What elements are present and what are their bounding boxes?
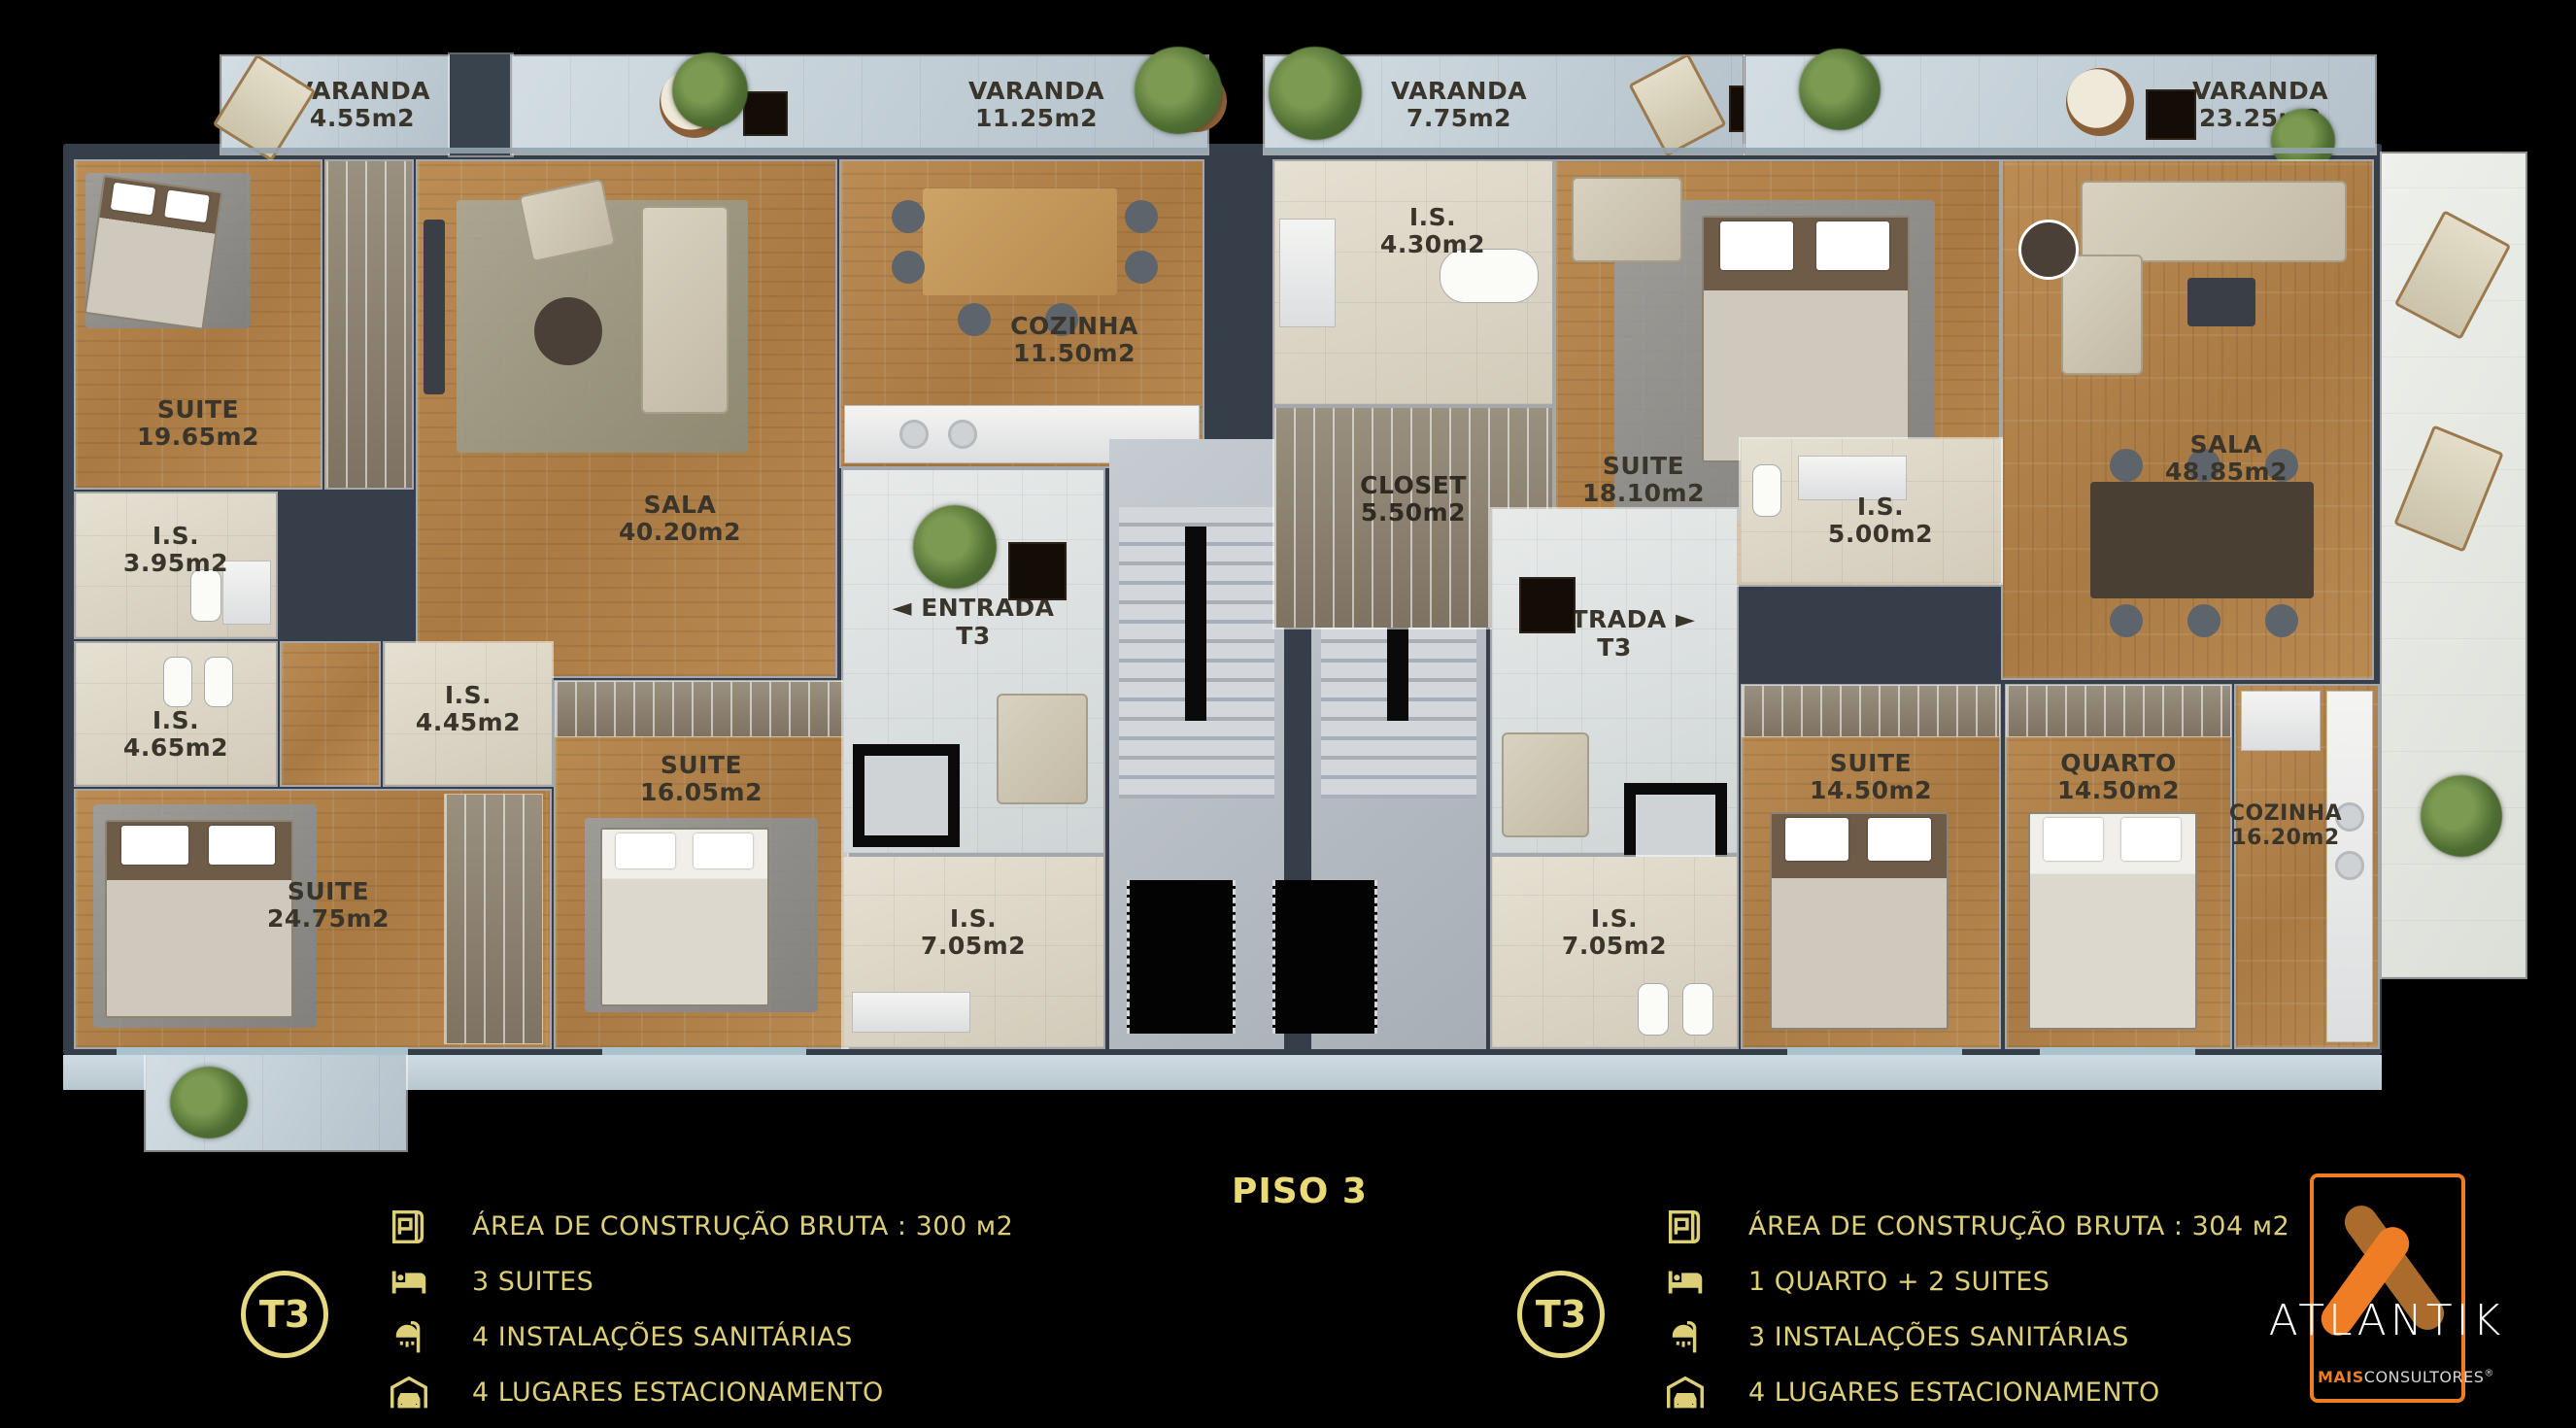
floor-title: PISO 3 [1232,1172,1368,1211]
room-area: 7.05m2 [843,933,1103,960]
console [1519,577,1576,633]
side-table [2146,89,2196,140]
plant [1135,47,1222,134]
legend-right: ÁREA DE CONSTRUÇÃO BRUTA : 304 м2 1 QUAR… [1663,1199,2289,1420]
room-is-430: I.S. 4.30m2 [1274,161,1552,404]
room-quarto: QUARTO 14.50m2 [2007,686,2230,1047]
room-name: I.S. [385,682,552,709]
toilet [1752,464,1781,517]
vanity [853,993,969,1032]
room-is-500: I.S. 5.00m2 [1741,439,2020,583]
coffee-table [2187,278,2255,326]
dining-table [2090,482,2314,598]
varanda-railing [1265,148,2375,153]
coffee-table [534,297,602,365]
room-name: I.S. [76,523,276,550]
shower-icon [387,1315,455,1360]
bed [85,175,223,330]
room-name: CLOSET [1274,472,1552,499]
sofa [2061,255,2143,375]
room-name: SUITE [556,752,847,779]
blueprint-icon [387,1205,455,1249]
room-is-705-right: I.S. 7.05m2 [1492,857,1737,1047]
room-is-705-left: I.S. 7.05m2 [843,857,1103,1047]
room-area: 14.50m2 [1743,777,1999,804]
plant [1269,47,1362,140]
toilet [163,657,192,707]
room-name: I.S. [76,707,276,734]
lounger [213,53,317,161]
hanging-chair [2066,68,2134,136]
bed [1770,812,1949,1030]
room-area: 19.65m2 [76,424,321,451]
room-suite-16: SUITE 16.05m2 [556,682,847,1047]
toilet [190,569,221,622]
room-name: SALA [554,492,806,519]
room-cozinha-left: COZINHA 11.50m2 [841,161,1203,466]
room-entrada-right: ENTRADA ► T3 [1492,509,1737,853]
garage-icon [1663,1371,1731,1415]
varanda-name: VARANDA [1362,78,1556,105]
lounger [2394,210,2512,340]
room-name: QUARTO [2007,750,2230,777]
window [1787,1047,1962,1055]
window [117,1047,408,1055]
bathtub [1440,249,1539,303]
room-area: 40.20m2 [554,519,806,546]
room-name: SUITE [1743,750,1999,777]
sofa [641,206,729,414]
plant [1799,49,1881,130]
plant [672,52,748,128]
bench [1502,732,1589,837]
room-area: 4.65m2 [76,734,276,762]
console [1008,542,1067,600]
entrance-arrow-icon: ◄ [893,594,913,623]
room-area: 14.50m2 [2007,777,2230,804]
varanda-area: 11.25m2 [930,105,1143,132]
room-name: SUITE [76,396,321,424]
shaft-void [1272,880,1377,1034]
room-cozinha-right: COZINHA 16.20m2 [2236,686,2378,1047]
legend-item-label: ÁREA DE CONSTRUÇÃO BRUTA : 300 м2 [472,1211,1013,1241]
lounger [2393,425,2504,552]
varanda-name: VARANDA [930,78,1143,105]
elevator [853,744,960,847]
window [602,1047,806,1055]
tv-sideboard [424,220,445,394]
room-sala-left: SALA 40.20m2 [418,161,835,676]
type-badge-left: T3 [241,1271,328,1358]
bidet [1682,983,1713,1036]
room-area: 5.00m2 [1741,521,2020,548]
room-is-395: I.S. 3.95m2 [76,493,276,637]
legend-item-label: 3 SUITES [472,1267,1013,1297]
shower-icon [1663,1315,1731,1360]
dining-table [923,188,1117,295]
legend-left: ÁREA DE CONSTRUÇÃO BRUTA : 300 м2 3 SUIT… [387,1199,1013,1420]
registered-mark: ® [2484,1369,2494,1379]
vanity [1280,220,1335,326]
room-suite-14: SUITE 14.50m2 [1743,686,1999,1047]
varanda-4-55: VARANDA 4.55m2 [221,56,450,153]
bidet [204,657,233,707]
toilet [1638,983,1669,1036]
room-name: I.S. [1294,204,1572,231]
legend-item-label: ÁREA DE CONSTRUÇÃO BRUTA : 304 м2 [1748,1211,2289,1241]
legend-item-label: 3 INSTALAÇÕES SANITÁRIAS [1748,1322,2289,1352]
blueprint-icon [1663,1205,1731,1249]
pillar [450,54,512,155]
room-area: 11.50m2 [948,340,1201,367]
corridor [282,643,379,785]
bed [105,820,293,1018]
room-area: 7.05m2 [1492,933,1737,960]
side-table [743,91,788,136]
floorplan-canvas: VARANDA 4.55m2 VARANDA 11.25m2 VARANDA 7… [0,0,2576,1428]
room-area: 4.45m2 [385,709,552,736]
bed [2028,812,2197,1030]
bed-icon [387,1260,455,1305]
closet-corridor [326,161,412,488]
bottom-walkway [63,1055,2382,1090]
varanda-11-25: VARANDA 11.25m2 [512,56,1207,153]
legend-item-label: 4 LUGARES ESTACIONAMENTO [472,1377,1013,1408]
room-is-465: I.S. 4.65m2 [76,643,276,785]
room-suite-19: SUITE 19.65m2 [76,161,321,488]
bench [997,694,1088,804]
varanda-area: 7.75m2 [1362,105,1556,132]
legend-item-label: 4 LUGARES ESTACIONAMENTO [1748,1377,2289,1408]
plant [913,505,997,589]
room-suite-24: SUITE 24.75m2 [76,791,550,1047]
brand-subtitle: MAISCONSULTORES® [2318,1368,2454,1386]
sofa [2081,181,2347,262]
legend-item-label: 4 INSTALAÇÕES SANITÁRIAS [472,1322,1013,1352]
lounger [1628,52,1726,156]
brand-sub-rest: CONSULTORES [2364,1368,2485,1386]
entrada-type: T3 [1492,634,1737,662]
side-terrace [2382,153,2525,977]
garage-icon [387,1371,455,1415]
room-area: 16.05m2 [556,779,847,806]
room-is-445: I.S. 4.45m2 [385,643,552,785]
type-badge-right: T3 [1517,1271,1605,1358]
legend-item-label: 1 QUARTO + 2 SUITES [1748,1267,2289,1297]
bed [1702,216,1910,462]
bed-icon [1663,1260,1731,1305]
side-table [2018,220,2079,280]
window [2040,1047,2195,1055]
vanity [1799,457,1906,499]
pouf [1572,177,1682,262]
entrance-arrow-icon: ► [1676,605,1696,634]
brand-sub-bold: MAIS [2318,1368,2364,1386]
vanity [223,561,270,624]
plant [2421,775,2502,857]
brand-name: ATLANTIK [2259,1296,2514,1345]
varanda-railing [221,148,1207,153]
shaft-void [1127,880,1236,1034]
bed [600,828,769,1006]
entrada-type: T3 [843,623,1103,650]
room-name: I.S. [1492,905,1737,933]
plant [170,1067,248,1139]
kitchen-island [2242,692,2320,750]
room-name: I.S. [843,905,1103,933]
room-sala-right: SALA 48.85m2 [2003,161,2372,678]
